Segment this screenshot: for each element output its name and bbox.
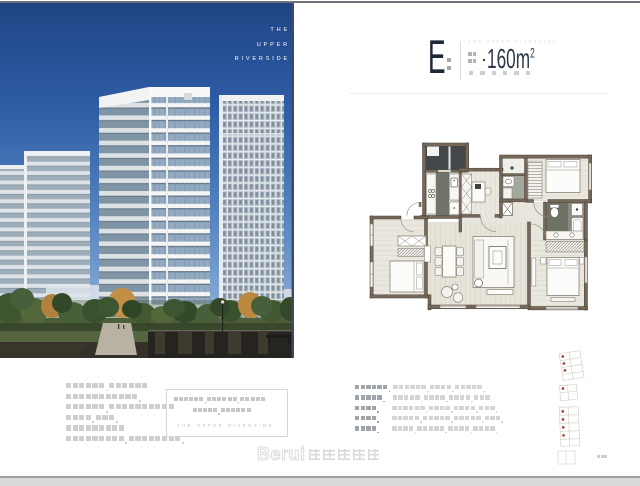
svg-text:THE: THE xyxy=(270,27,290,33)
svg-text:UPPER: UPPER xyxy=(257,42,290,48)
svg-text:RIVERSIDE: RIVERSIDE xyxy=(235,56,290,62)
